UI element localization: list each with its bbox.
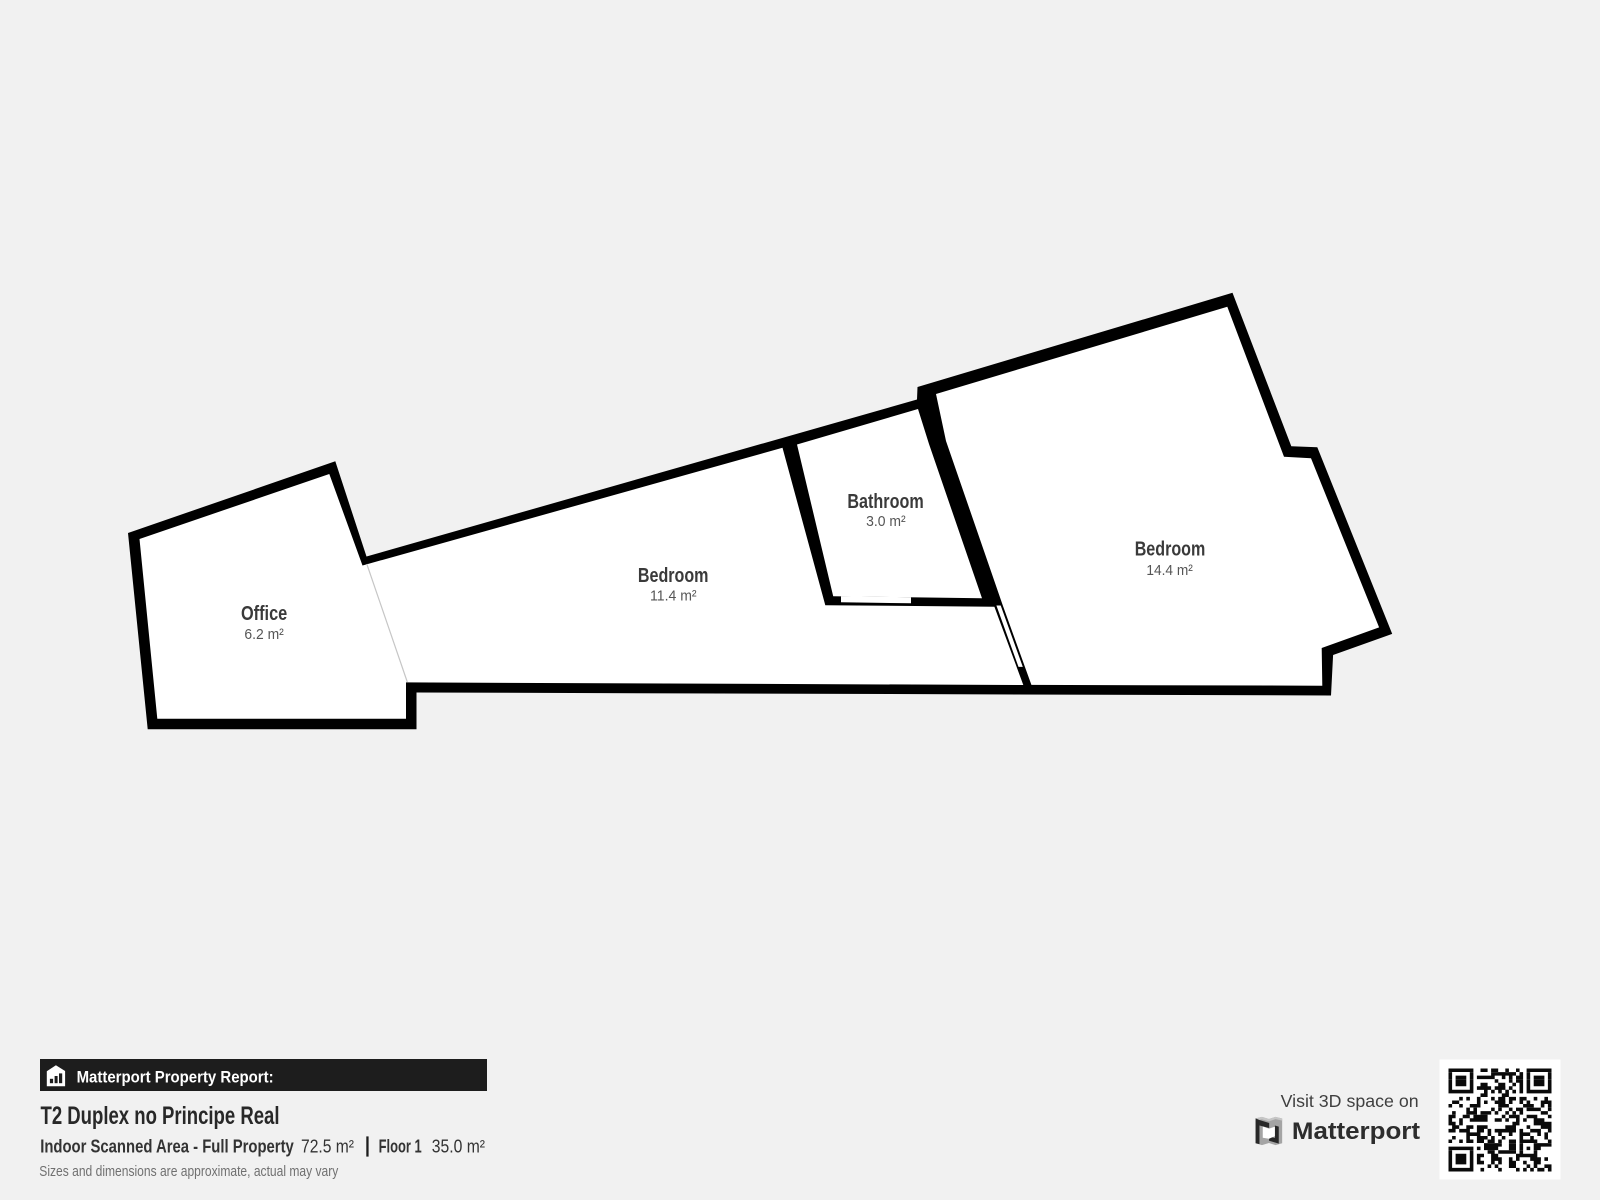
svg-text:35.0 m²: 35.0 m² bbox=[432, 1137, 485, 1157]
svg-text:Office: Office bbox=[241, 603, 287, 625]
svg-text:72.5 m²: 72.5 m² bbox=[301, 1137, 354, 1157]
svg-text:Floor 1: Floor 1 bbox=[379, 1137, 422, 1157]
svg-text:Indoor Scanned Area - Full Pro: Indoor Scanned Area - Full Property bbox=[40, 1137, 294, 1157]
svg-text:Bedroom: Bedroom bbox=[1135, 538, 1206, 560]
svg-text:3.0 m²: 3.0 m² bbox=[866, 513, 906, 530]
svg-text:Matterport Property Report:: Matterport Property Report: bbox=[77, 1068, 274, 1087]
svg-text:6.2 m²: 6.2 m² bbox=[244, 626, 283, 643]
svg-text:11.4 m²: 11.4 m² bbox=[650, 588, 697, 605]
svg-text:T2 Duplex no Principe Real: T2 Duplex no Principe Real bbox=[41, 1102, 280, 1130]
svg-text:Visit 3D space on: Visit 3D space on bbox=[1281, 1091, 1419, 1111]
svg-text:14.4 m²: 14.4 m² bbox=[1146, 562, 1192, 579]
svg-text:Matterport: Matterport bbox=[1292, 1118, 1420, 1145]
svg-text:Bathroom: Bathroom bbox=[847, 491, 923, 513]
svg-text:Sizes and dimensions are appro: Sizes and dimensions are approximate, ac… bbox=[39, 1163, 338, 1180]
svg-text:Bedroom: Bedroom bbox=[638, 565, 709, 587]
